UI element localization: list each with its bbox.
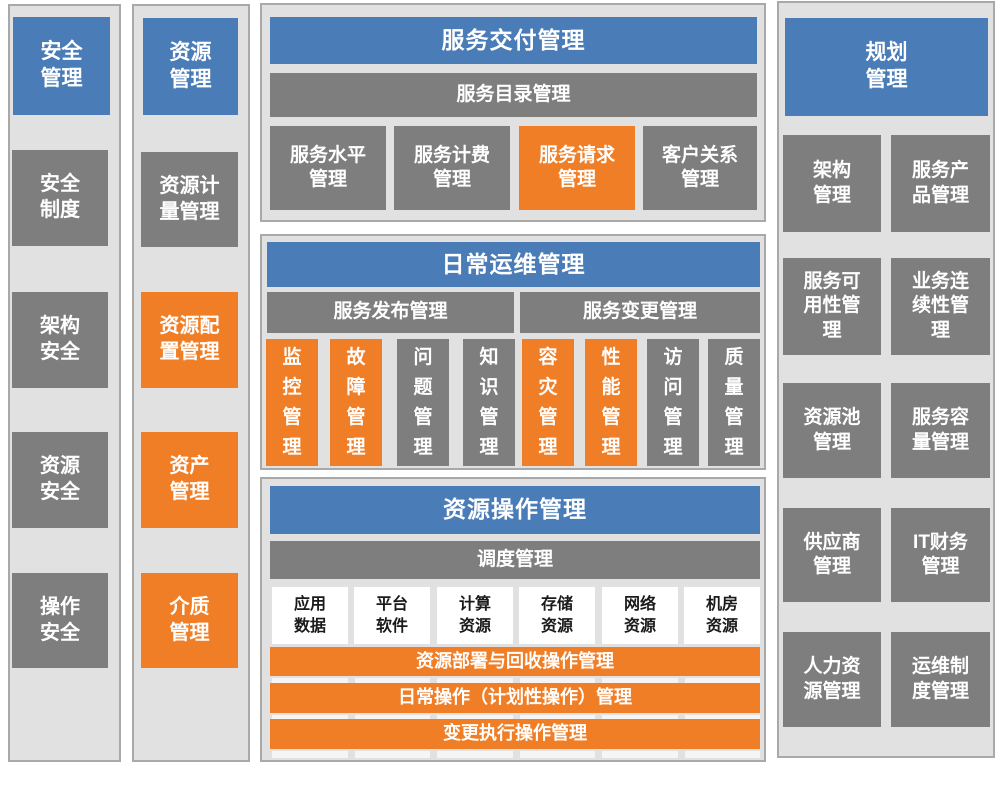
resource-item-asset: 资产 管理 [141,432,238,528]
security-item-operation: 操作 安全 [12,573,108,668]
service-capacity-mgmt-box: 服务容 量管理 [891,383,990,478]
incident-label: 故障管理 [345,343,367,463]
planning-column-header: 规划 管理 [785,18,988,116]
knowledge-box: 知识管理 [463,339,515,466]
machine-room-resource-box: 机房 资源 [684,587,760,644]
incident-box: 故障管理 [330,339,382,466]
quality-box: 质量管理 [708,339,760,466]
knowledge-label: 知识管理 [478,343,500,463]
service-request-box: 服务请求 管理 [519,126,635,210]
business-continuity-mgmt-box: 业务连 续性管 理 [891,258,990,355]
service-billing-box: 服务计费 管理 [394,126,510,210]
performance-box: 性能管理 [585,339,637,466]
human-resource-mgmt-box: 人力资 源管理 [783,632,881,727]
quality-label: 质量管理 [723,343,745,463]
service-availability-mgmt-box: 服务可 用性管 理 [783,258,881,355]
change-execution-operations-bar: 变更执行操作管理 [270,719,760,749]
resource-column-header: 资源 管理 [143,18,238,115]
service-delivery-panel: 服务交付管理 服务目录管理 服务水平 管理 服务计费 管理 服务请求 管理 客户… [260,3,766,222]
resource-item-configuration: 资源配 置管理 [141,292,238,388]
it-finance-mgmt-box: IT财务 管理 [891,508,990,602]
service-change-bar: 服务变更管理 [520,292,760,333]
access-box: 访问管理 [647,339,699,466]
storage-resource-box: 存储 资源 [519,587,595,644]
security-item-architecture: 架构 安全 [12,292,108,388]
dispatch-bar: 调度管理 [270,541,760,579]
network-resource-box: 网络 资源 [602,587,678,644]
security-item-policy: 安全 制度 [12,150,108,246]
security-item-resource: 资源 安全 [12,432,108,528]
resource-item-media: 介质 管理 [141,573,238,668]
service-delivery-header: 服务交付管理 [270,17,757,64]
supplier-mgmt-box: 供应商 管理 [783,508,881,602]
compute-resource-box: 计算 资源 [437,587,513,644]
monitoring-label: 监控管理 [281,343,303,463]
planning-column: 规划 管理 架构 管理 服务产 品管理 服务可 用性管 理 业务连 续性管 理 … [777,1,995,758]
resource-item-metering: 资源计 量管理 [141,152,238,247]
resource-operations-header: 资源操作管理 [270,486,760,534]
access-label: 访问管理 [662,343,684,463]
daily-operations-header: 日常运维管理 [267,242,760,287]
disaster-recovery-box: 容灾管理 [522,339,574,466]
monitoring-box: 监控管理 [266,339,318,466]
deploy-recycle-operations-bar: 资源部署与回收操作管理 [270,647,760,676]
service-product-mgmt-box: 服务产 品管理 [891,135,990,232]
service-level-box: 服务水平 管理 [270,126,386,210]
problem-box: 问题管理 [397,339,449,466]
security-column: 安全 管理 安全 制度 架构 安全 资源 安全 操作 安全 [8,4,121,762]
ops-policy-mgmt-box: 运维制 度管理 [891,632,990,727]
disaster-recovery-label: 容灾管理 [537,343,559,463]
architecture-mgmt-box: 架构 管理 [783,135,881,232]
service-release-bar: 服务发布管理 [267,292,514,333]
column-strip-row [272,751,760,758]
app-data-box: 应用 数据 [272,587,348,644]
service-catalog-bar: 服务目录管理 [270,73,757,117]
resource-operations-panel: 资源操作管理 调度管理 应用 数据 平台 软件 计算 资源 存储 资源 网络 资… [260,477,766,762]
customer-relation-box: 客户关系 管理 [643,126,757,210]
performance-label: 性能管理 [600,343,622,463]
resource-pool-mgmt-box: 资源池 管理 [783,383,881,478]
problem-label: 问题管理 [412,343,434,463]
platform-software-box: 平台 软件 [354,587,430,644]
resource-column: 资源 管理 资源计 量管理 资源配 置管理 资产 管理 介质 管理 [132,4,250,762]
daily-operations-panel: 日常运维管理 服务发布管理 服务变更管理 监控管理 故障管理 问题管理 知识管理… [260,234,766,470]
security-column-header: 安全 管理 [13,17,110,115]
daily-planned-operations-bar: 日常操作（计划性操作）管理 [270,683,760,713]
